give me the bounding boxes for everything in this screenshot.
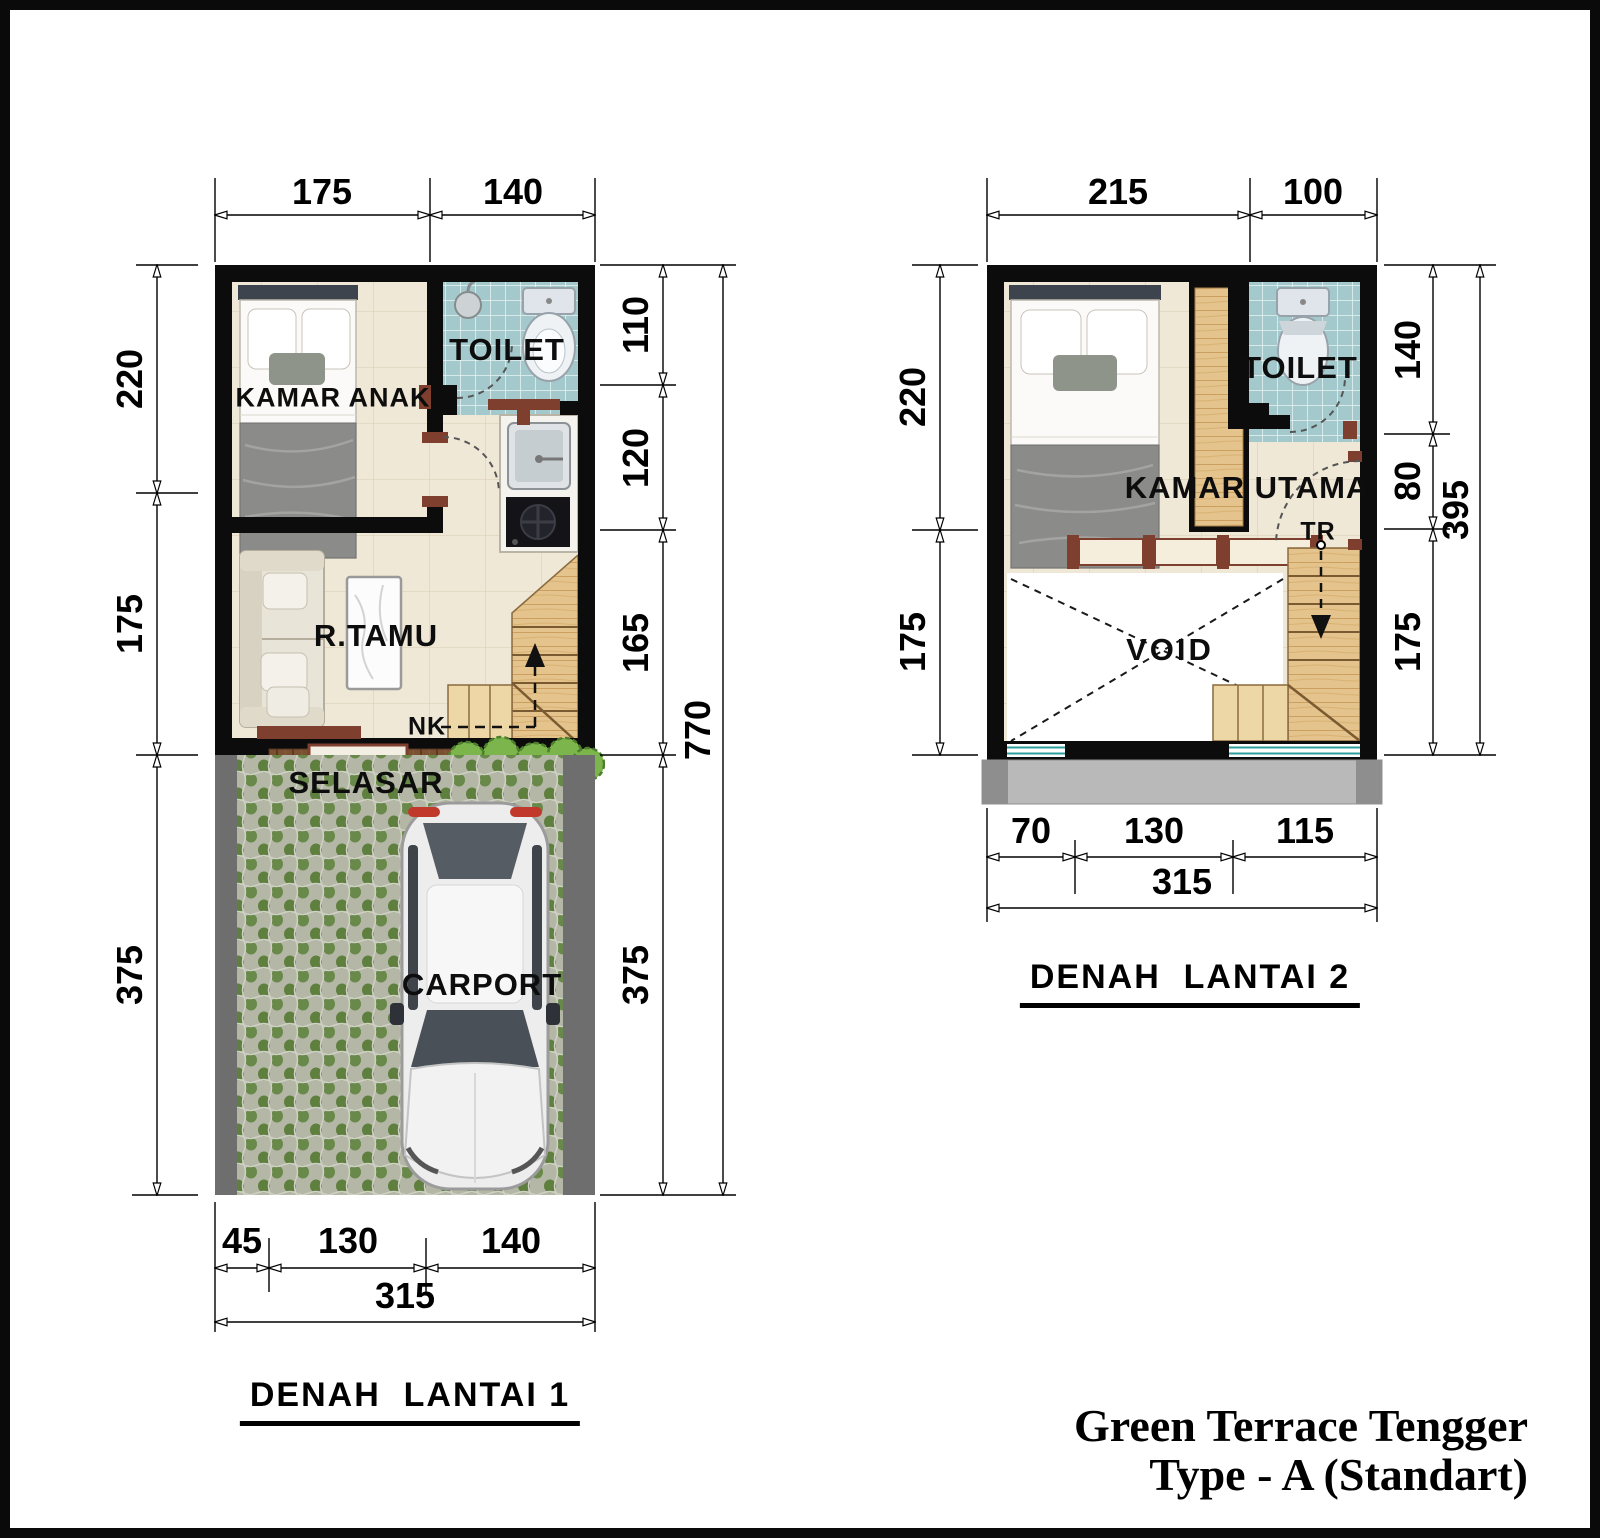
dim-f1-bottom-130: 130 xyxy=(318,1223,378,1259)
kitchen-counter xyxy=(500,415,578,552)
balcony xyxy=(982,760,1382,804)
floorplan-sheet: 175 140 220 175 375 110 120 165 375 770 … xyxy=(0,0,1600,1538)
dim-f2-top-215: 215 xyxy=(1088,174,1148,210)
dim-f2-bottom-70: 70 xyxy=(1011,813,1051,849)
room-label-carport: CARPORT xyxy=(402,967,562,1003)
room-label-void: VOID xyxy=(1126,632,1214,668)
dim-f1-top-140: 140 xyxy=(483,174,543,210)
dim-f2-bottom-total-315: 315 xyxy=(1152,864,1212,900)
dim-f2-right-80: 80 xyxy=(1390,461,1426,501)
room-label-kamar-anak: KAMAR ANAK xyxy=(236,383,431,414)
room-label-rtamu: R.TAMU xyxy=(314,618,438,654)
cabinet-row xyxy=(1067,535,1323,569)
dim-f1-right-total-770: 770 xyxy=(680,700,716,760)
room-label-toilet-f1: TOILET xyxy=(449,332,565,368)
sofa xyxy=(240,551,324,727)
stove xyxy=(506,497,570,547)
dim-f2-right-175: 175 xyxy=(1390,612,1426,672)
dim-f2-right-total-395: 395 xyxy=(1438,480,1474,540)
dim-f2-left-220: 220 xyxy=(895,367,931,427)
dim-f1-right-165: 165 xyxy=(618,613,654,673)
dim-f1-right-110: 110 xyxy=(618,296,654,354)
dim-f1-bottom-total-315: 315 xyxy=(375,1278,435,1314)
dim-f1-left-220: 220 xyxy=(112,349,148,409)
dim-f2-bottom-130: 130 xyxy=(1124,813,1184,849)
dim-f1-bottom-45: 45 xyxy=(222,1223,262,1259)
dim-f1-bottom-140: 140 xyxy=(481,1223,541,1259)
double-bed xyxy=(1009,285,1161,568)
carport-right-wall xyxy=(563,755,595,1195)
dim-f2-right-140: 140 xyxy=(1390,320,1426,380)
dim-f1-left-375: 375 xyxy=(112,945,148,1005)
dim-f2-top-100: 100 xyxy=(1283,174,1343,210)
dim-f1-right-375: 375 xyxy=(618,945,654,1005)
room-label-tr: TR xyxy=(1300,518,1335,547)
floor2-title: DENAH LANTAI 2 xyxy=(1020,958,1360,1008)
room-label-toilet-f2: TOILET xyxy=(1242,350,1358,386)
carport-left-wall xyxy=(215,755,237,1195)
room-label-selasar: SELASAR xyxy=(288,765,443,801)
project-title: Green Terrace Tengger Type - A (Standart… xyxy=(1074,1402,1528,1500)
project-title-line1: Green Terrace Tengger xyxy=(1074,1402,1528,1451)
room-label-kamar-utama: KAMAR UTAMA xyxy=(1125,470,1370,506)
dim-f2-left-175: 175 xyxy=(895,612,931,672)
room-label-nk: NK xyxy=(408,713,446,742)
stair-landing xyxy=(448,685,512,743)
dim-f2-bottom-115: 115 xyxy=(1276,813,1334,849)
floor1-title: DENAH LANTAI 1 xyxy=(240,1376,580,1426)
project-title-line2: Type - A (Standart) xyxy=(1074,1451,1528,1500)
dim-f1-right-120: 120 xyxy=(618,428,654,488)
dim-f1-left-175: 175 xyxy=(112,594,148,654)
dim-f1-top-175: 175 xyxy=(292,174,352,210)
stair-landing xyxy=(1213,685,1288,741)
